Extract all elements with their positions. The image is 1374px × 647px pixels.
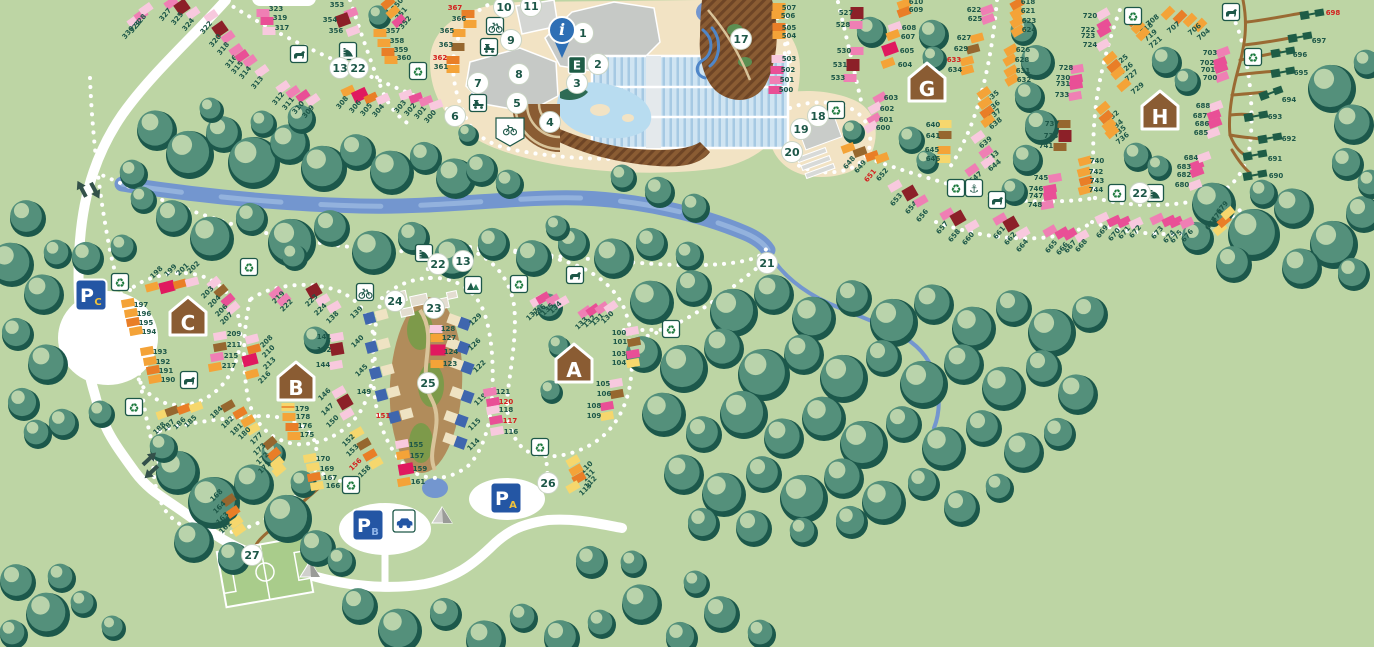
- dog-icon[interactable]: [181, 372, 198, 389]
- svg-text:6: 6: [451, 110, 459, 123]
- lodge-number-155: 155: [409, 441, 424, 449]
- lodge-number-362: 362: [433, 54, 448, 62]
- lodge-number-151: 151: [376, 412, 391, 420]
- lodge-number-731: 731: [1056, 80, 1071, 88]
- tree: [780, 475, 828, 523]
- svg-text:E: E: [573, 59, 581, 73]
- lodge-number-696: 696: [1293, 51, 1308, 59]
- slide-icon[interactable]: [340, 43, 357, 60]
- lodge-number-697: 697: [1312, 37, 1327, 45]
- lodge-number-192: 192: [156, 358, 171, 366]
- svg-text:21: 21: [759, 257, 774, 270]
- svg-text:13: 13: [332, 62, 347, 75]
- lodge-number-209: 209: [227, 330, 242, 338]
- lodge-number-361: 361: [434, 63, 449, 71]
- lagoon-island: [590, 104, 610, 116]
- lodge-319[interactable]: [261, 17, 274, 25]
- lodge-number-178: 178: [296, 413, 311, 421]
- tree: [802, 397, 846, 441]
- lodge-number-124: 124: [444, 348, 459, 356]
- lodge-323[interactable]: [257, 9, 270, 17]
- recycle-icon[interactable]: ♻: [1125, 8, 1142, 25]
- lodge-number-118: 118: [499, 406, 514, 414]
- svg-text:24: 24: [387, 295, 403, 308]
- map-point-23[interactable]: 23: [424, 298, 445, 319]
- lodge-number-157: 157: [410, 452, 425, 460]
- tree: [720, 391, 768, 439]
- svg-text:♻: ♻: [951, 182, 962, 196]
- map-point-27[interactable]: 27: [242, 545, 263, 566]
- lodge-363[interactable]: [452, 43, 465, 51]
- svg-text:♻: ♻: [514, 278, 525, 292]
- tree: [922, 427, 966, 471]
- lodge-number-625: 625: [968, 15, 983, 23]
- recycle-icon[interactable]: ♻: [343, 477, 360, 494]
- lodge-number-694: 694: [1282, 96, 1297, 104]
- parking-sign-B[interactable]: P B: [353, 510, 384, 541]
- lodge-number-319: 319: [273, 14, 288, 22]
- bike-icon[interactable]: [357, 284, 374, 301]
- svg-text:25: 25: [420, 377, 435, 390]
- plaza-building: [446, 291, 457, 300]
- lodge-number-605: 605: [900, 47, 915, 55]
- map-point-24[interactable]: 24: [385, 291, 406, 312]
- lodge-number-159: 159: [413, 465, 428, 473]
- svg-text:10: 10: [496, 1, 512, 14]
- lodge-number-733: 733: [1055, 91, 1070, 99]
- svg-text:♻: ♻: [129, 401, 140, 415]
- lodge-number-317: 317: [275, 24, 290, 32]
- tree: [642, 393, 686, 437]
- lodge-number-604: 604: [898, 61, 913, 69]
- map-point-20[interactable]: 20: [782, 142, 803, 163]
- tree: [952, 307, 996, 351]
- svg-text:7: 7: [474, 77, 482, 90]
- lodge-number-628: 628: [1015, 56, 1030, 64]
- lodge-number-691: 691: [1268, 155, 1283, 163]
- dog-icon[interactable]: [291, 46, 308, 63]
- lodge-number-179: 179: [295, 405, 310, 413]
- lodge-number-217: 217: [222, 362, 237, 370]
- lodge-number-693: 693: [1268, 113, 1283, 121]
- parking-sign-C[interactable]: P C: [76, 280, 107, 311]
- lodge-number-724: 724: [1083, 41, 1098, 49]
- lodge-number-633: 633: [947, 56, 962, 64]
- lodge-number-527: 527: [839, 9, 854, 17]
- lodge-number-641: 641: [926, 132, 941, 140]
- svg-text:♻: ♻: [115, 276, 126, 290]
- lodge-number-632: 632: [1017, 76, 1032, 84]
- map-point-18[interactable]: 18: [808, 106, 829, 127]
- lodge-number-627: 627: [957, 34, 972, 42]
- lodge-number-123: 123: [443, 360, 458, 368]
- svg-text:11: 11: [523, 0, 538, 13]
- lodge-number-175: 175: [300, 431, 315, 439]
- car-icon[interactable]: [393, 510, 415, 532]
- lodge-number-117: 117: [503, 417, 518, 425]
- tree: [820, 355, 868, 403]
- lodge-number-144: 144: [316, 361, 331, 369]
- lodge-number-191: 191: [159, 367, 174, 375]
- tree: [982, 367, 1026, 411]
- lodge-number-100: 100: [612, 329, 627, 337]
- map-point-13[interactable]: 13: [453, 251, 474, 272]
- pond: [422, 478, 448, 498]
- svg-text:4: 4: [546, 116, 554, 129]
- svg-text:H: H: [1152, 105, 1169, 129]
- map-point-9[interactable]: 9: [501, 30, 522, 51]
- lodge-179[interactable]: [282, 403, 295, 411]
- lodge-number-720: 720: [1083, 12, 1098, 20]
- lodge-number-170: 170: [316, 455, 331, 463]
- tree: [660, 345, 708, 393]
- map-point-22[interactable]: 22: [348, 58, 369, 79]
- tree: [1028, 309, 1076, 357]
- lodge-number-141: 141: [317, 333, 332, 341]
- map-point-4[interactable]: 4: [540, 112, 561, 133]
- lodge-number-194: 194: [142, 328, 157, 336]
- lodge-number-688: 688: [1196, 102, 1211, 110]
- lodge-357[interactable]: [374, 29, 387, 37]
- lodge-number-128: 128: [441, 325, 456, 333]
- map-point-26[interactable]: 26: [538, 473, 559, 494]
- map-point-17[interactable]: 17: [731, 29, 752, 50]
- svg-text:20: 20: [784, 146, 800, 159]
- map-point-21[interactable]: 21: [757, 253, 778, 274]
- lodge-number-531: 531: [833, 61, 848, 69]
- lodge-number-323: 323: [269, 5, 284, 13]
- recycle-icon[interactable]: ♻: [663, 321, 680, 338]
- lodge-number-743: 743: [1090, 177, 1105, 185]
- svg-text:B: B: [288, 376, 303, 400]
- svg-text:♻: ♻: [666, 323, 677, 337]
- tree: [900, 361, 948, 409]
- lodge-number-603: 603: [884, 94, 899, 102]
- lodge-number-127: 127: [442, 334, 457, 342]
- lodge-number-358: 358: [390, 37, 405, 45]
- lodge-737[interactable]: [1058, 120, 1071, 128]
- svg-text:2: 2: [594, 58, 602, 71]
- lodge-number-500: 500: [779, 86, 794, 94]
- svg-text:i: i: [559, 20, 565, 39]
- lodge-741[interactable]: [1054, 143, 1067, 151]
- tree: [26, 593, 70, 637]
- lodge-530[interactable]: [851, 47, 864, 55]
- map-point-11[interactable]: 11: [521, 0, 542, 17]
- lodge-number-600: 600: [876, 124, 891, 132]
- lodge-number-502: 502: [781, 66, 796, 74]
- lodge-123[interactable]: [431, 360, 444, 368]
- cart-icon[interactable]: [481, 39, 498, 56]
- svg-text:♻: ♻: [535, 441, 546, 455]
- lodge-number-747: 747: [1029, 192, 1044, 200]
- svg-text:C: C: [181, 311, 196, 335]
- lodge-number-618: 618: [1021, 0, 1036, 6]
- parking-sign-A[interactable]: P A: [491, 483, 522, 514]
- lodge-175[interactable]: [288, 432, 301, 440]
- lodge-738[interactable]: [1059, 130, 1072, 142]
- lodge-645[interactable]: [938, 146, 951, 154]
- lodge-number-741: 741: [1039, 142, 1054, 150]
- park-map: 3303293283273253243223203183163153143133…: [0, 0, 1374, 647]
- svg-text:17: 17: [733, 33, 748, 46]
- tree: [352, 231, 396, 275]
- lodge-number-602: 602: [880, 105, 895, 113]
- recycle-icon[interactable]: ♻: [1109, 185, 1126, 202]
- lodge-142[interactable]: [330, 342, 345, 356]
- lodge-number-626: 626: [1016, 46, 1031, 54]
- lodge-number-121: 121: [496, 388, 511, 396]
- lodge-number-176: 176: [298, 422, 313, 430]
- lodge-number-360: 360: [397, 54, 412, 62]
- lodge-358[interactable]: [378, 39, 391, 47]
- lodge-number-357: 357: [386, 27, 401, 35]
- map-point-3[interactable]: 3: [567, 73, 588, 94]
- lodge-number-748: 748: [1028, 201, 1043, 209]
- lodge-number-195: 195: [139, 319, 154, 327]
- lodge-number-702: 702: [1200, 59, 1215, 67]
- lodge-number-700: 700: [1203, 74, 1218, 82]
- recycle-icon[interactable]: ♻: [241, 259, 258, 276]
- svg-text:P: P: [80, 285, 94, 307]
- lodge-number-103: 103: [612, 350, 627, 358]
- lodge-number-645: 645: [925, 146, 940, 154]
- lodge-640[interactable]: [939, 120, 952, 128]
- dog-icon[interactable]: [1223, 4, 1240, 21]
- svg-text:P: P: [495, 488, 509, 510]
- map-point-10[interactable]: 10: [494, 0, 515, 18]
- park-map-canvas: 3303293283273253243223203183163153143133…: [0, 0, 1374, 647]
- lodge-317[interactable]: [263, 27, 276, 35]
- svg-text:C: C: [94, 297, 101, 308]
- lodge-176[interactable]: [286, 423, 299, 431]
- lodge-number-506: 506: [781, 12, 796, 20]
- lodge-number-701: 701: [1201, 66, 1216, 74]
- lodge-533[interactable]: [844, 74, 857, 82]
- lodge-178[interactable]: [283, 413, 296, 421]
- lodge-number-629: 629: [954, 45, 969, 53]
- lodge-number-365: 365: [440, 27, 455, 35]
- lodge-number-740: 740: [1090, 157, 1105, 165]
- svg-text:19: 19: [793, 123, 808, 136]
- anchor-icon[interactable]: ⚓: [966, 180, 983, 197]
- map-point-22[interactable]: 22: [1130, 183, 1151, 204]
- dog-icon[interactable]: [989, 192, 1006, 209]
- lodge-number-166: 166: [326, 482, 341, 490]
- map-point-25[interactable]: 25: [418, 373, 439, 394]
- svg-text:22: 22: [350, 62, 365, 75]
- building-cut: [252, 0, 316, 6]
- lodge-number-101: 101: [613, 338, 628, 346]
- svg-text:22: 22: [1132, 187, 1147, 200]
- lodge-number-609: 609: [909, 6, 924, 14]
- lodge-362[interactable]: [447, 56, 460, 64]
- lodge-number-149: 149: [357, 388, 372, 396]
- svg-text:♻: ♻: [1112, 187, 1123, 201]
- lodge-number-624: 624: [1022, 26, 1037, 34]
- lodge-number-169: 169: [320, 465, 335, 473]
- svg-text:B: B: [371, 527, 379, 538]
- svg-text:5: 5: [513, 97, 521, 110]
- tree: [862, 481, 906, 525]
- lagoon-island: [622, 114, 634, 122]
- lodge-number-698: 698: [1326, 9, 1341, 17]
- lodge-number-622: 622: [967, 6, 982, 14]
- svg-text:G: G: [919, 77, 935, 101]
- lodge-number-105: 105: [596, 380, 611, 388]
- lodge-number-742: 742: [1089, 168, 1104, 176]
- svg-text:26: 26: [540, 477, 556, 490]
- recycle-icon[interactable]: ♻: [511, 276, 528, 293]
- tree: [870, 299, 918, 347]
- lodge-361[interactable]: [447, 65, 460, 73]
- lodge-number-190: 190: [161, 376, 176, 384]
- lodge-number-120: 120: [499, 398, 514, 406]
- entrance-marker-E[interactable]: E: [569, 57, 586, 74]
- lodge-number-690: 690: [1269, 172, 1284, 180]
- lodge-number-504: 504: [782, 32, 797, 40]
- lodge-number-109: 109: [587, 412, 602, 420]
- lodge-number-356: 356: [329, 27, 344, 35]
- map-point-19[interactable]: 19: [791, 119, 812, 140]
- tree: [370, 151, 414, 195]
- svg-text:23: 23: [426, 302, 441, 315]
- cart-icon[interactable]: [470, 95, 487, 112]
- lodge-number-104: 104: [612, 359, 627, 367]
- lodge-number-621: 621: [1021, 7, 1036, 15]
- lodge-number-367: 367: [448, 4, 463, 12]
- lodge-365[interactable]: [453, 29, 466, 37]
- lodge-number-607: 607: [901, 33, 916, 41]
- playground-icon[interactable]: [465, 277, 482, 294]
- lodge-359[interactable]: [382, 48, 395, 56]
- lodge-number-646: 646: [926, 155, 941, 163]
- lodge-number-682: 682: [1177, 171, 1192, 179]
- lodge-number-363: 363: [439, 41, 454, 49]
- tree: [630, 281, 674, 325]
- svg-text:♻: ♻: [1128, 10, 1139, 24]
- svg-text:A: A: [566, 358, 582, 382]
- lodge-number-601: 601: [879, 116, 894, 124]
- lodge-number-685: 685: [1194, 129, 1209, 137]
- lodge-number-142: 142: [317, 346, 332, 354]
- recycle-icon[interactable]: ♻: [126, 399, 143, 416]
- lodge-number-161: 161: [411, 478, 426, 486]
- lodge-number-684: 684: [1184, 154, 1199, 162]
- lodge-number-728: 728: [1059, 64, 1074, 72]
- lodge-number-193: 193: [153, 348, 168, 356]
- recycle-icon[interactable]: ♻: [948, 180, 965, 197]
- bike-icon[interactable]: [487, 18, 504, 35]
- svg-text:18: 18: [810, 110, 825, 123]
- lodge-number-683: 683: [1177, 163, 1192, 171]
- svg-text:13: 13: [455, 255, 470, 268]
- svg-text:P: P: [357, 515, 371, 537]
- svg-text:A: A: [509, 500, 517, 511]
- tree: [190, 217, 234, 261]
- lodge-528[interactable]: [850, 21, 863, 29]
- lodge-number-503: 503: [782, 55, 797, 63]
- lodge-number-197: 197: [134, 301, 149, 309]
- tree: [792, 297, 836, 341]
- svg-text:8: 8: [515, 68, 523, 81]
- lodge-number-211: 211: [227, 341, 242, 349]
- svg-text:22: 22: [430, 258, 445, 271]
- dog-icon[interactable]: [567, 267, 584, 284]
- lodge-number-680: 680: [1175, 181, 1190, 189]
- recycle-icon[interactable]: ♻: [828, 102, 845, 119]
- lodge-number-703: 703: [1203, 49, 1218, 57]
- lodge-number-501: 501: [780, 76, 795, 84]
- lodge-number-116: 116: [504, 428, 519, 436]
- lodge-number-106: 106: [597, 390, 612, 398]
- lodge-number-196: 196: [137, 310, 152, 318]
- map-point-6[interactable]: 6: [445, 106, 466, 127]
- lodge-number-507: 507: [782, 4, 797, 12]
- svg-text:♻: ♻: [831, 104, 842, 118]
- map-point-8[interactable]: 8: [509, 64, 530, 85]
- svg-text:27: 27: [244, 549, 259, 562]
- lodge-641[interactable]: [939, 131, 952, 139]
- lodge-number-640: 640: [926, 121, 941, 129]
- svg-text:♻: ♻: [1248, 51, 1259, 65]
- lodge-number-353: 353: [330, 1, 345, 9]
- lodge-number-631: 631: [1016, 67, 1031, 75]
- recycle-icon[interactable]: ♻: [410, 63, 427, 80]
- lodge-number-505: 505: [782, 24, 797, 32]
- lodge-number-744: 744: [1089, 186, 1104, 194]
- lodge-number-737: 737: [1045, 120, 1060, 128]
- lodge-number-215: 215: [224, 352, 239, 360]
- svg-text:♻: ♻: [244, 261, 255, 275]
- lodge-number-634: 634: [948, 66, 963, 74]
- map-point-2[interactable]: 2: [588, 54, 609, 75]
- lodge-number-528: 528: [836, 21, 851, 29]
- lodge-number-530: 530: [837, 47, 852, 55]
- lodge-number-533: 533: [831, 74, 846, 82]
- svg-text:9: 9: [507, 34, 515, 47]
- lodge-number-687: 687: [1193, 112, 1208, 120]
- lodge-number-686: 686: [1195, 120, 1210, 128]
- lodge-number-623: 623: [1022, 17, 1037, 25]
- lodge-number-738: 738: [1044, 132, 1059, 140]
- recycle-icon[interactable]: ♻: [112, 274, 129, 291]
- recycle-icon[interactable]: ♻: [532, 439, 549, 456]
- map-point-5[interactable]: 5: [507, 93, 528, 114]
- lodge-number-608: 608: [902, 24, 917, 32]
- lodge-number-108: 108: [587, 402, 602, 410]
- svg-text:3: 3: [573, 77, 581, 90]
- lodge-number-167: 167: [323, 474, 338, 482]
- svg-text:♻: ♻: [346, 479, 357, 493]
- svg-text:⚓: ⚓: [969, 183, 979, 196]
- lodge-number-695: 695: [1294, 69, 1309, 77]
- recycle-icon[interactable]: ♻: [1245, 49, 1262, 66]
- lodge-360[interactable]: [385, 56, 398, 64]
- lodge-number-723: 723: [1081, 32, 1096, 40]
- svg-text:1: 1: [579, 27, 587, 40]
- lodge-number-359: 359: [394, 46, 409, 54]
- svg-text:♻: ♻: [413, 65, 424, 79]
- map-point-7[interactable]: 7: [468, 73, 489, 94]
- lodge-531[interactable]: [847, 59, 860, 71]
- map-point-22[interactable]: 22: [428, 254, 449, 275]
- lodge-number-366: 366: [452, 15, 467, 23]
- lodge-number-692: 692: [1282, 135, 1297, 143]
- lodge-number-354: 354: [323, 16, 338, 24]
- lodge-number-745: 745: [1034, 174, 1049, 182]
